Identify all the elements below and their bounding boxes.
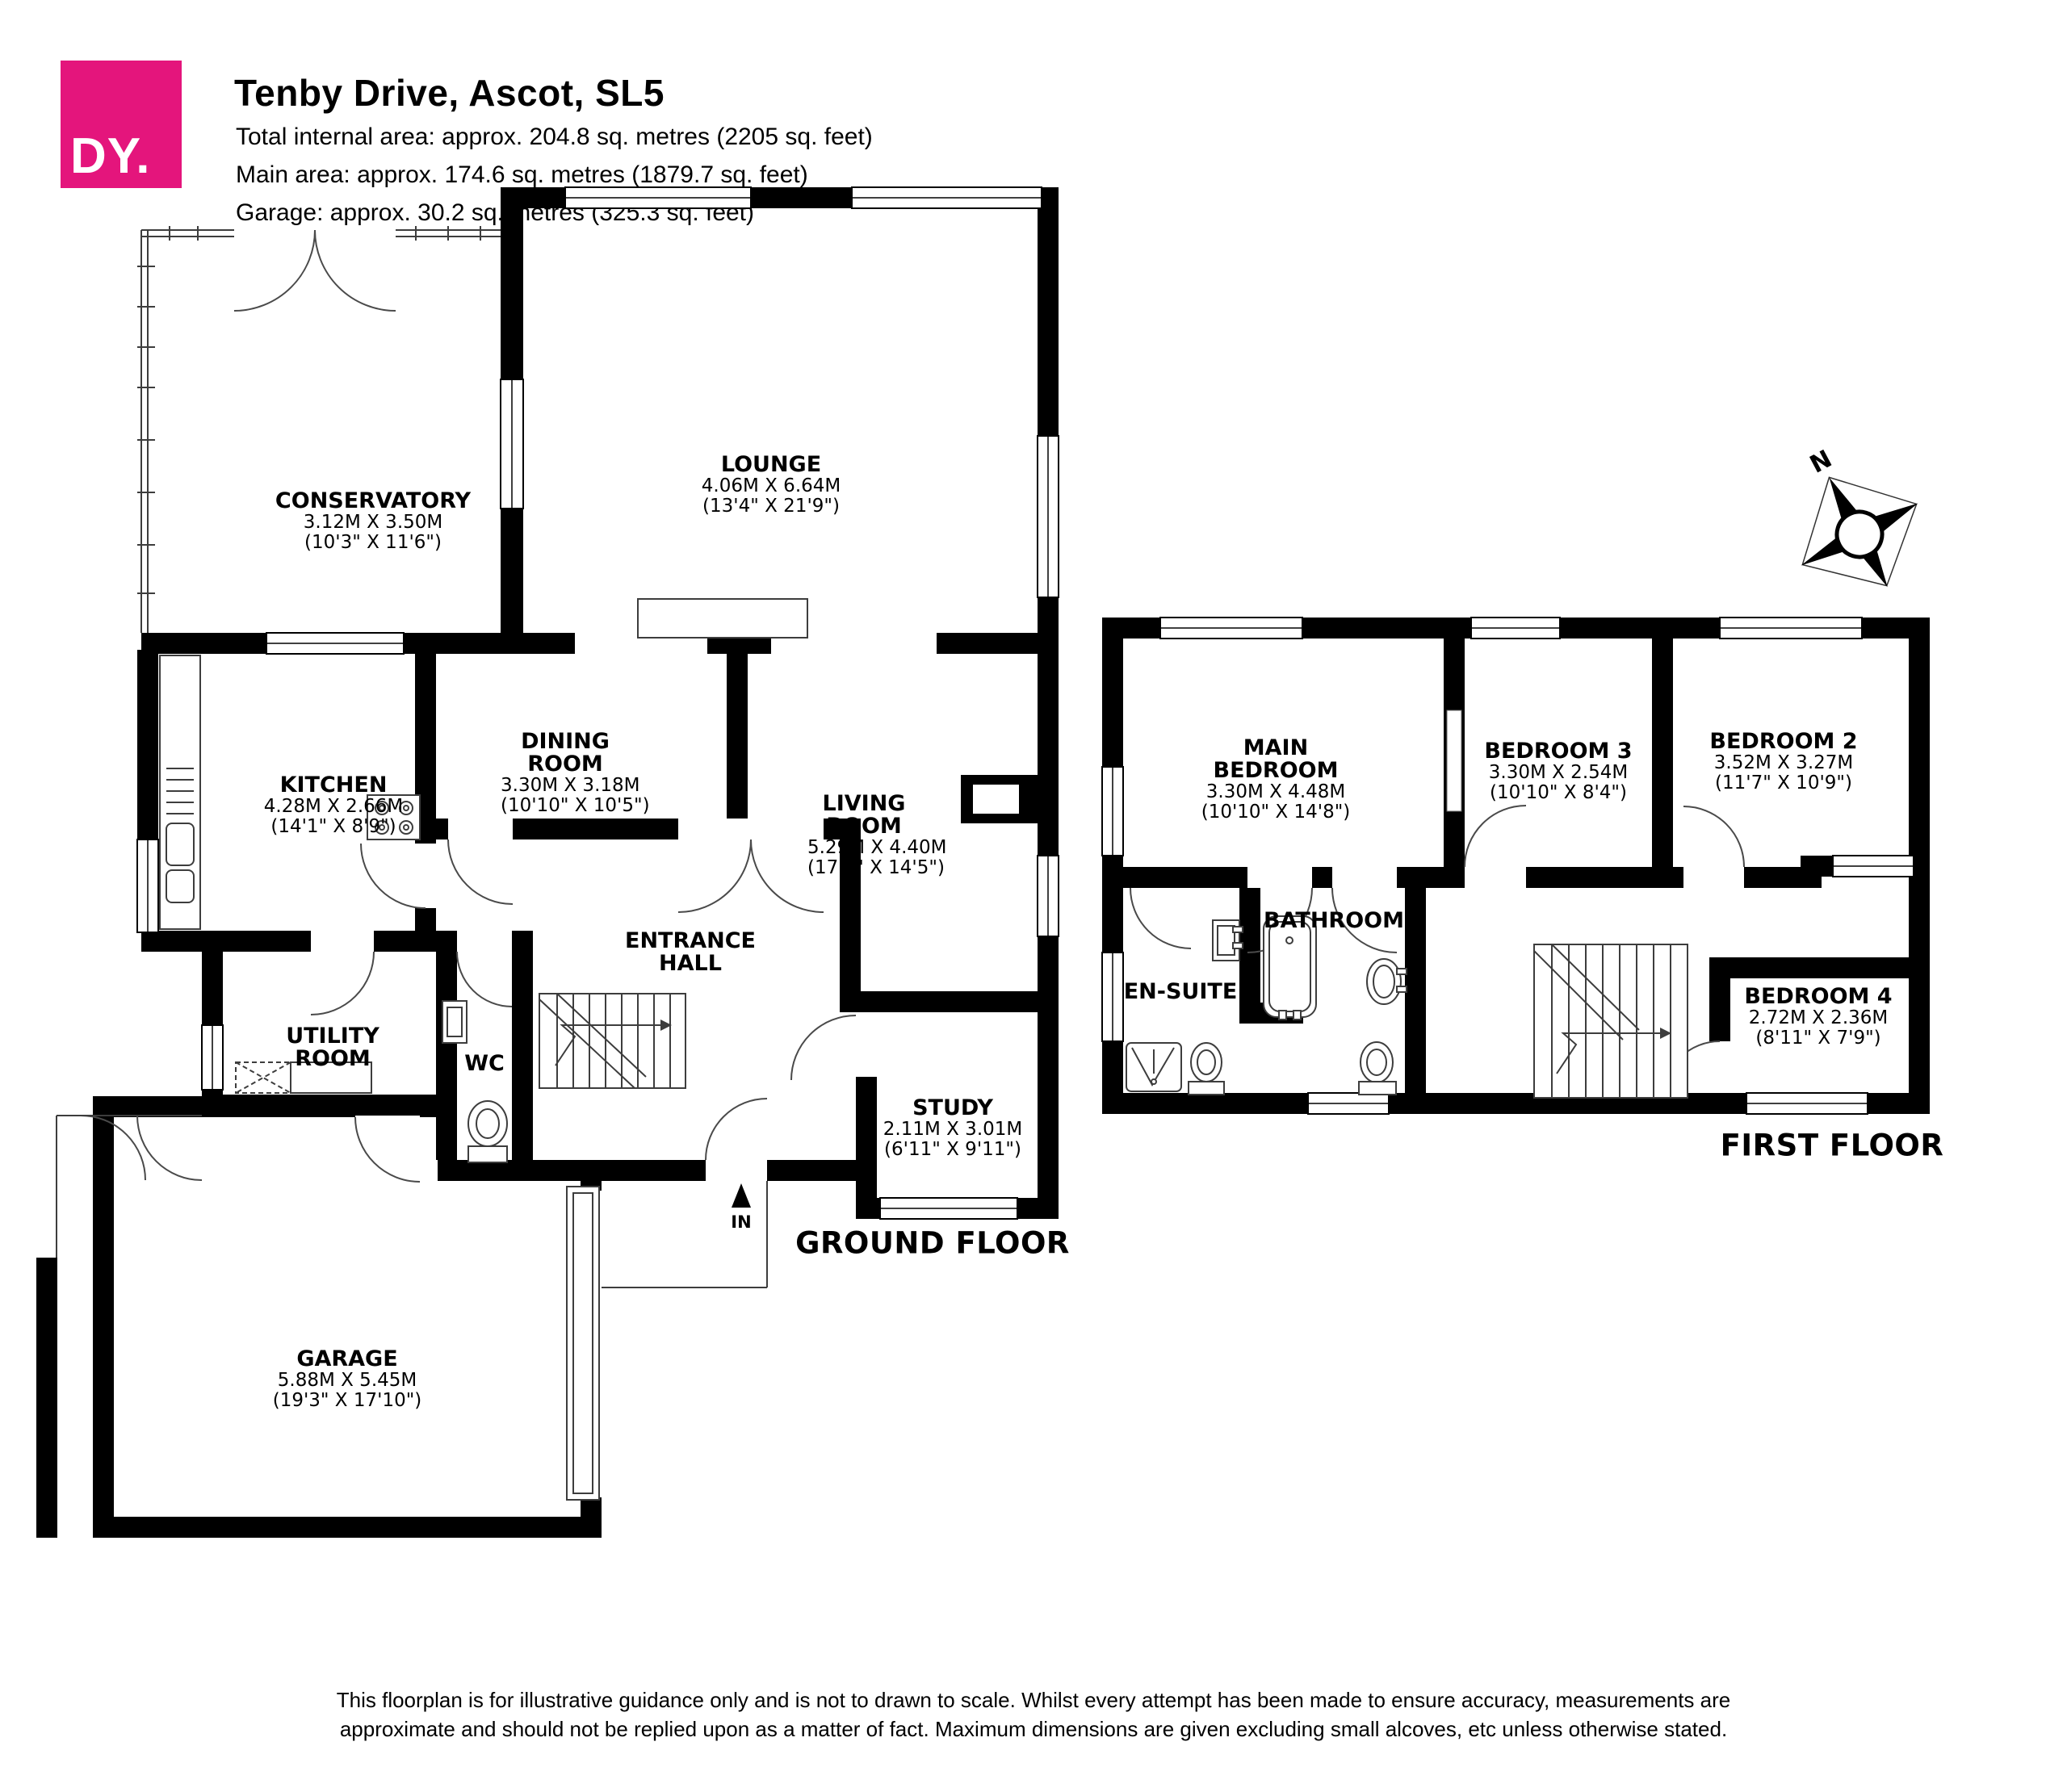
disclaimer-line-2: approximate and should not be replied up… — [0, 1715, 2067, 1744]
entry-in-label: IN — [731, 1212, 751, 1232]
room-label-bedroom-4: BEDROOM 4 2.72M X 2.36M (8'11" X 7'9") — [1744, 986, 1892, 1049]
ground-floor-title: GROUND FLOOR — [795, 1226, 1070, 1261]
floorplan-page: DY. Tenby Drive, Ascot, SL5 Total intern… — [0, 0, 2067, 1792]
room-label-bedroom-2: BEDROOM 2 3.52M X 3.27M (11'7" X 10'9") — [1709, 731, 1857, 793]
room-label-living-room: LIVING ROOM 5.29M X 4.40M (17'4" X 14'5"… — [807, 793, 920, 878]
room-label-study: STUDY 2.11M X 3.01M (6'11" X 9'11") — [883, 1097, 1023, 1160]
room-label-kitchen: KITCHEN 4.28M X 2.66M (14'1" X 8'9") — [264, 774, 404, 837]
room-label-lounge: LOUNGE 4.06M X 6.64M (13'4" X 21'9") — [702, 454, 841, 517]
disclaimer: This floorplan is for illustrative guida… — [0, 1685, 2067, 1744]
conservatory-glazing — [137, 226, 501, 633]
compass-icon: N — [1756, 418, 1946, 618]
room-label-entrance-hall: ENTRANCE HALL — [614, 930, 767, 975]
disclaimer-line-1: This floorplan is for illustrative guida… — [0, 1685, 2067, 1715]
entry-arrow-icon — [732, 1183, 751, 1208]
first-floor-title: FIRST FLOOR — [1721, 1128, 1944, 1163]
bathroom-toilet — [1359, 1042, 1396, 1095]
ground-floor-stairs — [539, 994, 686, 1088]
room-label-en-suite: EN-SUITE — [1124, 981, 1238, 1003]
room-label-garage: GARAGE 5.88M X 5.45M (19'3" X 17'10") — [273, 1348, 422, 1411]
room-label-dining-room: DINING ROOM 3.30M X 3.18M (10'10" X 10'5… — [501, 731, 630, 816]
garage-door — [567, 1187, 599, 1500]
room-label-bedroom-3: BEDROOM 3 3.30M X 2.54M (10'10" X 8'4") — [1484, 740, 1632, 803]
ensuite-shower — [1126, 1043, 1181, 1091]
room-label-utility-room: UTILITY ROOM — [272, 1025, 393, 1070]
wc-sink — [442, 1001, 467, 1043]
wc-toilet — [468, 1101, 507, 1162]
first-floor-stairs — [1534, 944, 1688, 1098]
room-label-main-bedroom: MAIN BEDROOM 3.30M X 4.48M (10'10" X 14'… — [1199, 737, 1352, 823]
bathroom-sink — [1367, 959, 1407, 1004]
compass-north-label: N — [1805, 445, 1837, 479]
kitchen-sink — [166, 823, 194, 865]
ensuite-sink — [1213, 920, 1243, 961]
ensuite-toilet — [1189, 1043, 1224, 1095]
room-label-bathroom: BATHROOM — [1264, 910, 1404, 932]
floorplan-svg: N — [0, 0, 2067, 1792]
room-label-wc: WC — [464, 1053, 505, 1075]
lounge-sideboard — [638, 599, 807, 638]
room-label-conservatory: CONSERVATORY 3.12M X 3.50M (10'3" X 11'6… — [275, 490, 471, 553]
